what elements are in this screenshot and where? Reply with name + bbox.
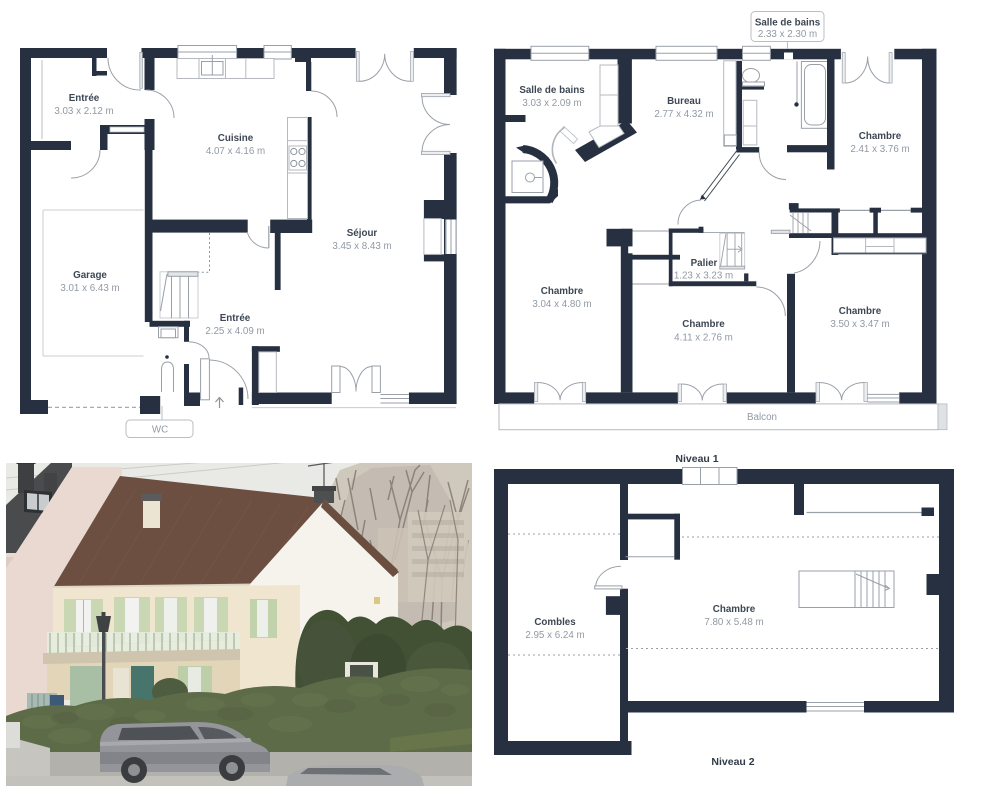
svg-text:Séjour: Séjour (347, 228, 378, 239)
svg-text:3.03 x 2.09 m: 3.03 x 2.09 m (522, 98, 581, 109)
svg-text:Niveau 1: Niveau 1 (675, 453, 718, 465)
svg-text:3.01 x 6.43 m: 3.01 x 6.43 m (60, 283, 119, 294)
svg-text:3.04 x 4.80 m: 3.04 x 4.80 m (532, 299, 591, 310)
svg-text:3.45 x 8.43 m: 3.45 x 8.43 m (332, 241, 391, 252)
svg-text:Chambre: Chambre (713, 604, 756, 615)
svg-text:Salle de bains: Salle de bains (755, 18, 821, 29)
svg-text:Garage: Garage (73, 270, 107, 281)
svg-text:1.23 x 3.23 m: 1.23 x 3.23 m (674, 271, 733, 282)
svg-text:Entrée: Entrée (220, 313, 251, 324)
svg-text:7.80 x 5.48 m: 7.80 x 5.48 m (704, 617, 763, 628)
svg-text:Niveau 2: Niveau 2 (711, 756, 754, 768)
svg-text:Entrée: Entrée (69, 93, 100, 104)
svg-text:2.95 x 6.24 m: 2.95 x 6.24 m (525, 630, 584, 641)
svg-text:4.07 x 4.16 m: 4.07 x 4.16 m (206, 146, 265, 157)
svg-text:WC: WC (152, 425, 168, 436)
svg-text:Chambre: Chambre (859, 131, 902, 142)
svg-text:Balcon: Balcon (747, 412, 777, 423)
svg-text:4.11 x 2.76 m: 4.11 x 2.76 m (674, 333, 733, 344)
svg-text:Combles: Combles (534, 617, 576, 628)
svg-text:Chambre: Chambre (541, 286, 584, 297)
svg-text:Salle de bains: Salle de bains (519, 85, 585, 96)
svg-text:3.03 x 2.12 m: 3.03 x 2.12 m (54, 106, 113, 117)
svg-text:3.50 x 3.47 m: 3.50 x 3.47 m (830, 319, 889, 330)
svg-text:Cuisine: Cuisine (218, 133, 254, 144)
svg-text:2.41 x 3.76 m: 2.41 x 3.76 m (850, 144, 909, 155)
svg-text:Chambre: Chambre (839, 306, 882, 317)
svg-text:Palier: Palier (691, 258, 718, 269)
svg-text:2.77 x 4.32 m: 2.77 x 4.32 m (654, 109, 713, 120)
svg-text:2.33 x 2.30 m: 2.33 x 2.30 m (758, 29, 817, 40)
svg-text:Bureau: Bureau (667, 96, 701, 107)
svg-text:2.25 x 4.09 m: 2.25 x 4.09 m (205, 326, 264, 337)
svg-text:Chambre: Chambre (682, 319, 725, 330)
